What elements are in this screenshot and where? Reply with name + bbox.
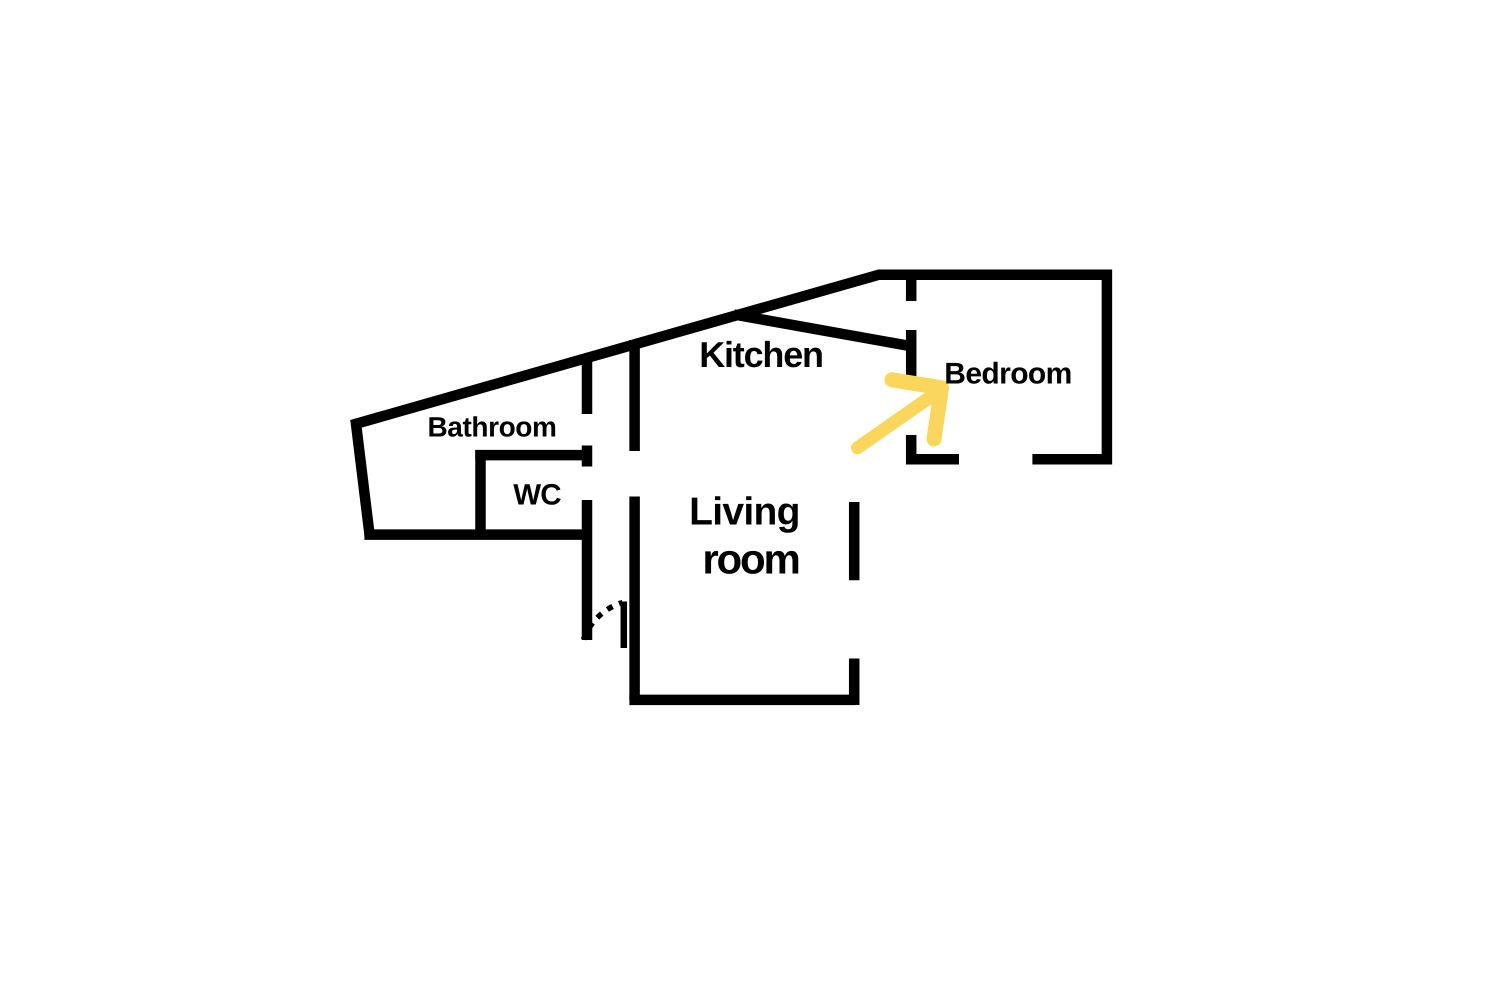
svg-text:WC: WC xyxy=(513,479,561,512)
svg-text:Bedroom: Bedroom xyxy=(944,358,1071,391)
svg-text:Living: Living xyxy=(689,491,800,534)
svg-text:Bathroom: Bathroom xyxy=(427,411,556,442)
svg-text:room: room xyxy=(702,536,798,583)
svg-text:Kitchen: Kitchen xyxy=(699,334,823,375)
